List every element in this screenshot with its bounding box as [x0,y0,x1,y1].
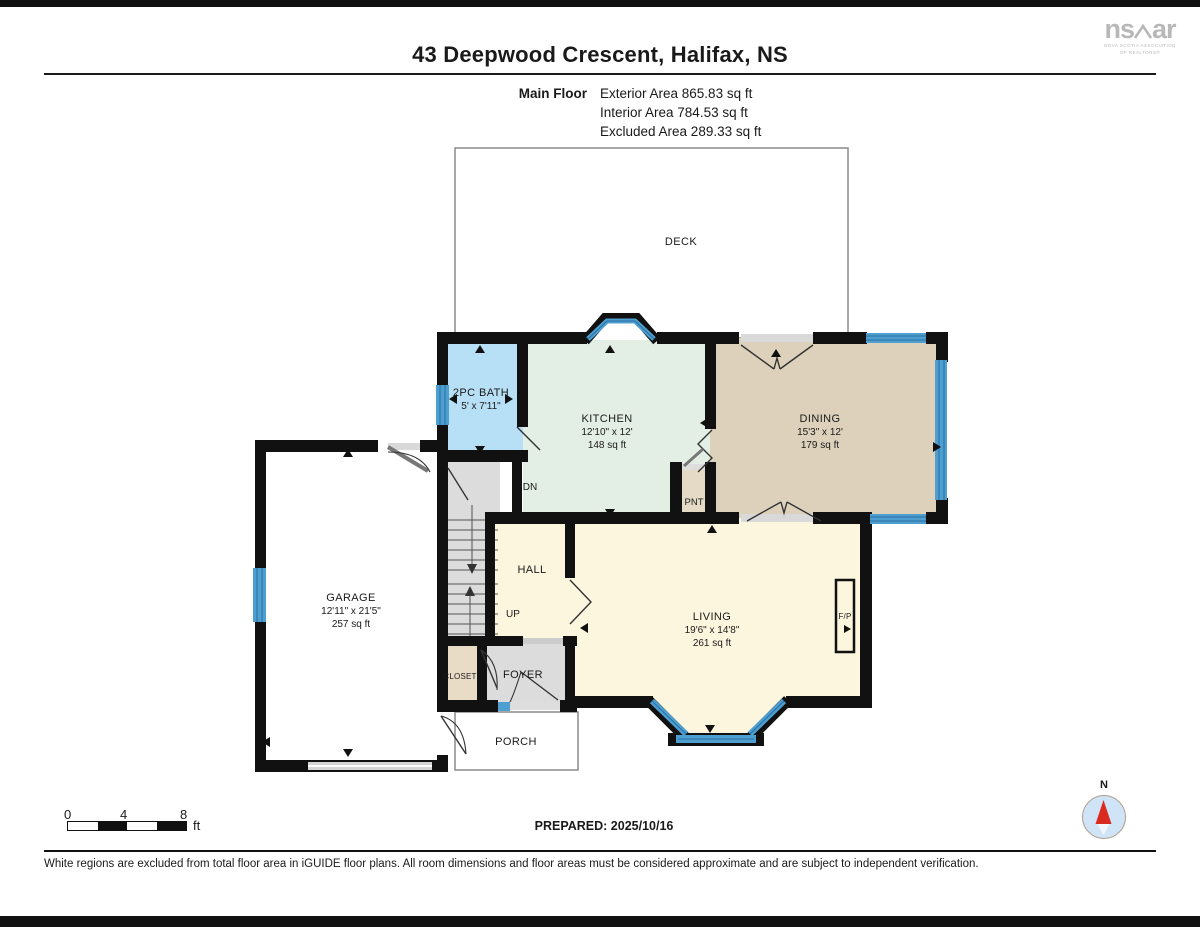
prepared-date: PREPARED: 2025/10/16 [0,819,1200,833]
room-label-bath: 2PC BATH [453,387,509,399]
room-area-dining: 179 sq ft [801,440,840,451]
room-deck [455,148,848,338]
room-label-hall: HALL [517,564,546,576]
room-dims-living: 19'6" x 14'8" [685,625,740,636]
room-dims-garage: 12'11" x 21'5" [321,606,381,617]
room-dims-kitchen: 12'10" x 12' [581,427,632,438]
stairs-up-label: UP [506,609,520,620]
room-label-dining: DINING [800,413,841,425]
room-label-closet: CLOSET [443,672,476,681]
room-label-kitchen: KITCHEN [581,413,632,425]
compass-north-label: N [1082,779,1126,791]
floor-plan-svg: DECK 2PC BATH 5' x 7'11" KITCHEN 12'10" … [0,0,1200,927]
room-label-foyer: FOYER [503,669,543,681]
room-label-porch: PORCH [495,736,537,748]
stairs-down-label: DN [523,482,537,493]
room-area-living: 261 sq ft [693,638,732,649]
room-area-garage: 257 sq ft [332,619,371,630]
compass-icon [1082,795,1126,839]
fireplace-label: F/P [838,612,851,621]
room-label-pantry: PNT [685,497,704,508]
garage-door [308,762,432,770]
room-area-kitchen: 148 sq ft [588,440,627,451]
footer-divider [44,850,1156,852]
room-dims-dining: 15'3" x 12' [797,427,843,438]
room-label-deck: DECK [665,236,697,248]
floor-plan-page: { "page": { "title": "43 Deepwood Cresce… [0,0,1200,927]
room-dims-bath: 5' x 7'11" [461,401,501,412]
room-label-garage: GARAGE [326,592,375,604]
room-label-living: LIVING [693,611,731,623]
disclaimer-text: White regions are excluded from total fl… [44,858,1164,870]
